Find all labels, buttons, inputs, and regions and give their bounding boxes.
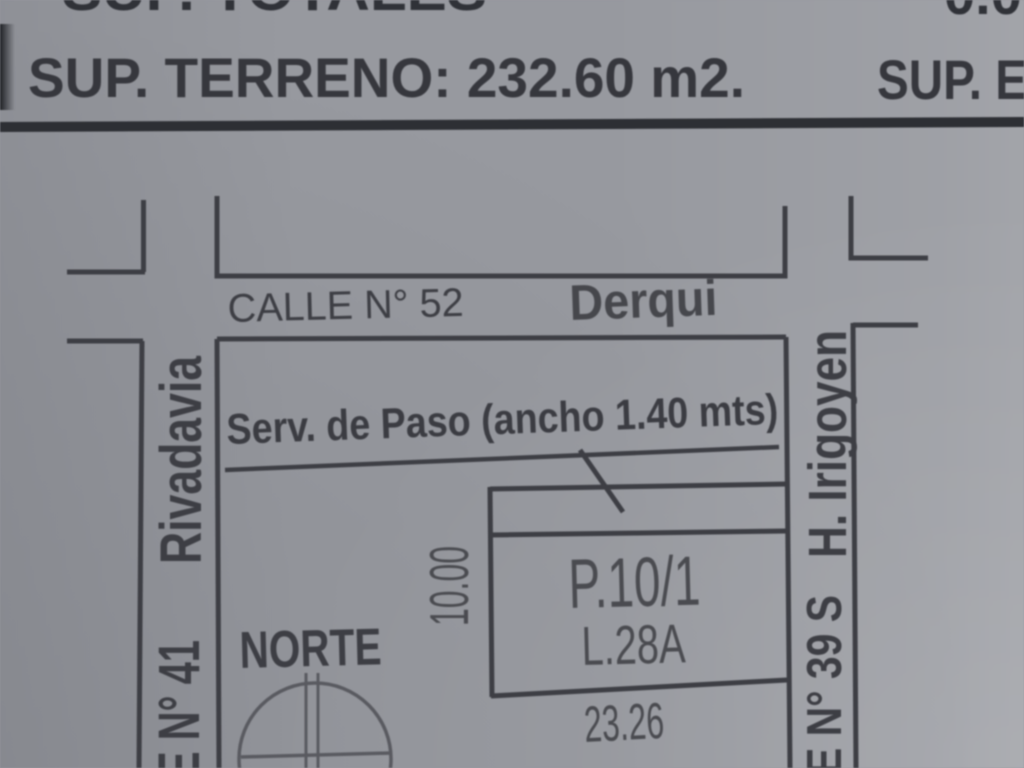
svg-text:CALLE N° 52: CALLE N° 52 [227,281,464,331]
svg-text:10.00: 10.00 [418,546,480,626]
svg-text:P.10/1: P.10/1 [567,542,701,623]
svg-text:SUP. TOTALES: SUP. TOTALES [62,0,487,22]
svg-text:SUP. E: SUP. E [877,48,1024,111]
svg-text:23.26: 23.26 [583,692,666,753]
svg-text:0.00: 0.00 [944,0,1024,26]
svg-text:Rivadavia: Rivadavia [149,355,214,564]
svg-text:NORTE: NORTE [239,618,382,680]
svg-text:E N° 39 S: E N° 39 S [798,595,852,768]
svg-text:H. Irigoyen: H. Irigoyen [798,330,858,558]
svg-text:Derqui: Derqui [568,270,718,331]
svg-text:E N° 41: E N° 41 [147,640,212,768]
svg-text:SUP. TERRENO: 232.60 m2.: SUP. TERRENO: 232.60 m2. [28,46,745,109]
svg-text:L.28A: L.28A [581,612,687,677]
